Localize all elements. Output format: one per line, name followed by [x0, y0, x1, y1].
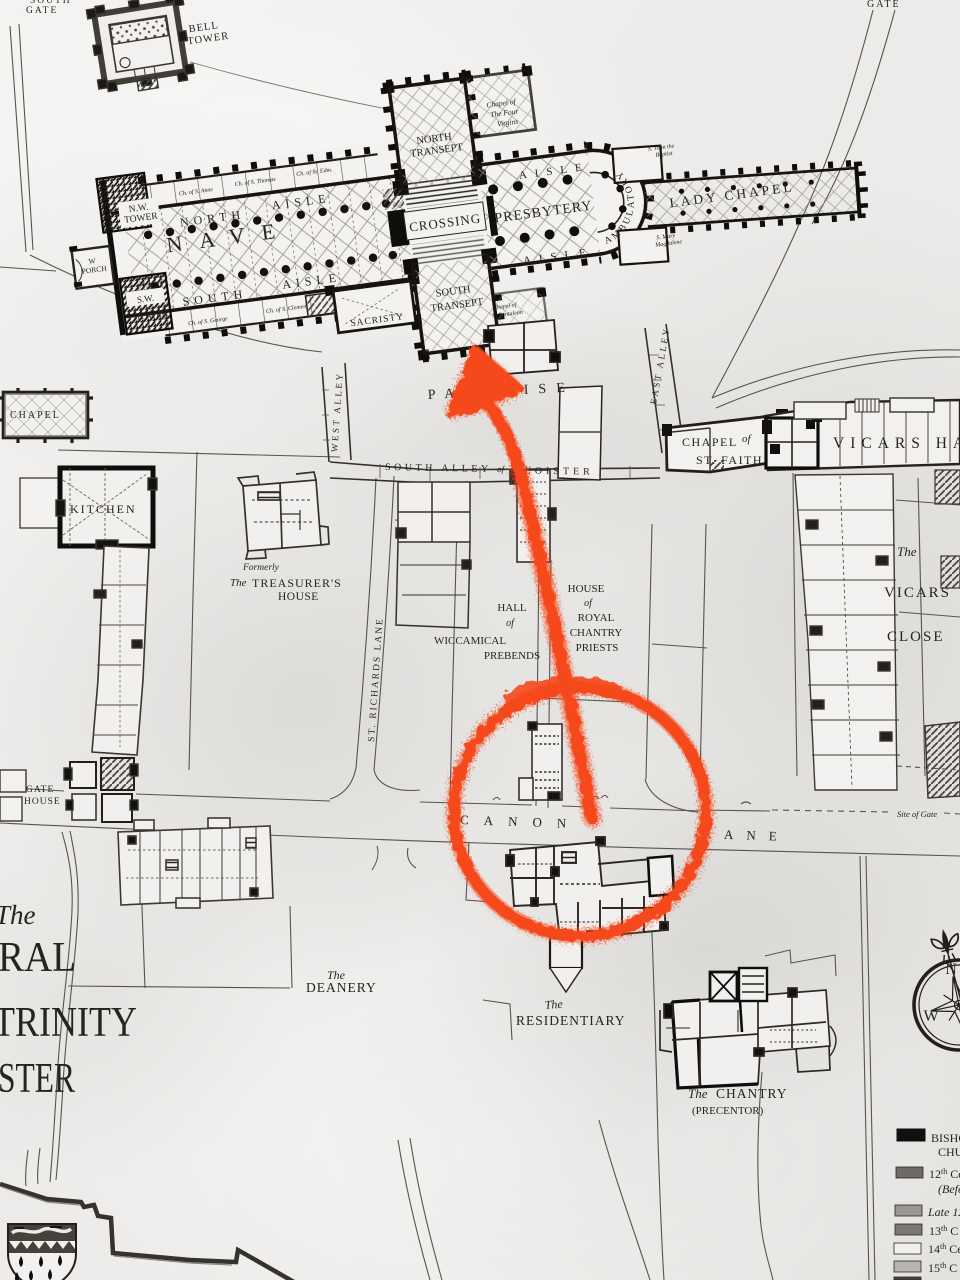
svg-text:BISHOP'S: BISHOP'S [931, 1131, 960, 1145]
svg-text:GATE: GATE [867, 0, 901, 10]
svg-text:VICARS: VICARS [884, 585, 951, 601]
svg-text:GATE: GATE [26, 785, 54, 795]
svg-text:W: W [923, 1008, 939, 1025]
svg-text:HOUSE: HOUSE [278, 591, 319, 603]
svg-text:HALL: HALL [497, 602, 527, 614]
svg-text:(Befor: (Befor [938, 1182, 960, 1196]
svg-text:N: N [945, 961, 957, 978]
svg-text:HOUSE: HOUSE [24, 797, 61, 807]
svg-text:ST. FAITH: ST. FAITH [696, 453, 763, 467]
svg-text:ROYAL: ROYAL [578, 612, 615, 624]
svg-text:LANE: LANE [703, 826, 790, 844]
svg-text:of: of [584, 598, 593, 609]
svg-text:The: The [897, 544, 917, 559]
svg-text:KITCHEN: KITCHEN [70, 502, 137, 516]
svg-text:CHAPEL: CHAPEL [10, 410, 61, 421]
svg-text:CLOSE: CLOSE [887, 629, 945, 645]
svg-text:WICCAMICAL: WICCAMICAL [434, 635, 506, 647]
svg-text:The: The [544, 997, 564, 1012]
svg-text:RAL: RAL [0, 935, 76, 981]
svg-text:SOUTH ALLEY: SOUTH ALLEY [385, 462, 492, 475]
svg-text:Site of Gate: Site of Gate [897, 809, 937, 819]
svg-text:CHANTRY: CHANTRY [570, 627, 623, 639]
svg-text:VICARS HAL: VICARS HAL [833, 435, 960, 452]
svg-text:(PRECENTOR): (PRECENTOR) [692, 1105, 764, 1117]
svg-text:Late 12: Late 12 [927, 1205, 960, 1219]
svg-text:RESIDENTIARY: RESIDENTIARY [516, 1013, 626, 1028]
svg-text:Formerly: Formerly [242, 563, 280, 573]
svg-text:HOUSE: HOUSE [568, 583, 605, 595]
svg-text:The: The [0, 900, 36, 930]
svg-text:DEANERY: DEANERY [306, 980, 377, 995]
svg-text:of: of [506, 618, 515, 629]
svg-text:CHAPEL: CHAPEL [682, 435, 738, 449]
svg-text:STER: STER [0, 1056, 75, 1102]
svg-text:PREBENDS: PREBENDS [484, 650, 540, 662]
svg-text:CHANTRY: CHANTRY [716, 1086, 788, 1101]
svg-text:GATE: GATE [26, 6, 58, 16]
svg-text:TRINITY: TRINITY [0, 1000, 137, 1046]
svg-text:TREASURER'S: TREASURER'S [252, 576, 342, 590]
svg-text:CHURCH: CHURCH [938, 1145, 960, 1159]
svg-text:PRIESTS: PRIESTS [576, 642, 619, 654]
svg-text:The: The [688, 1086, 708, 1101]
svg-text:The: The [230, 577, 247, 589]
